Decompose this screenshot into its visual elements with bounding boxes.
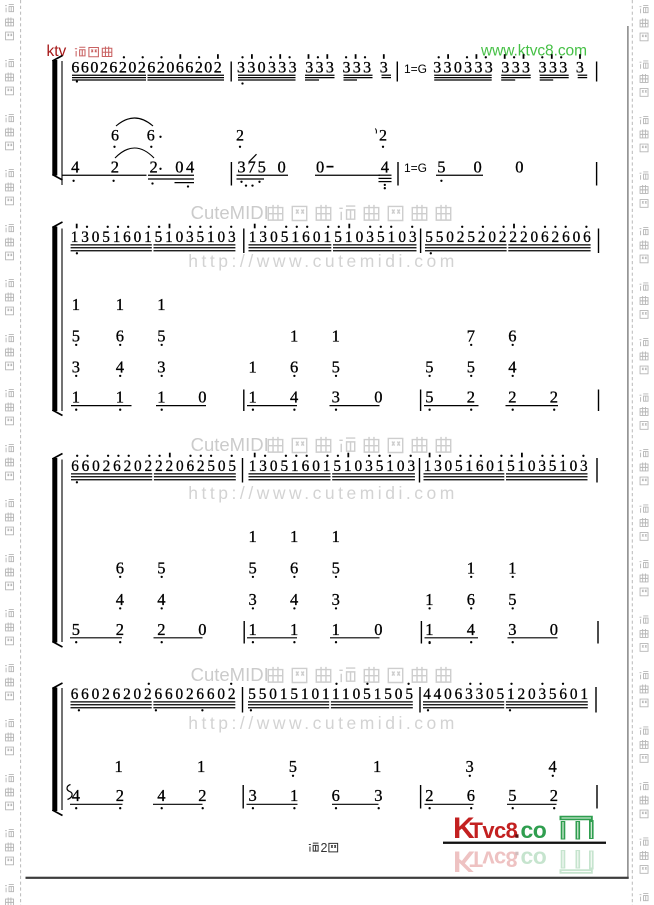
svg-text:1: 1 [425,590,433,609]
svg-text:3: 3 [249,786,257,805]
svg-text:5: 5 [425,388,433,407]
svg-text:5: 5 [289,757,297,776]
svg-text:375: 375 [237,157,266,176]
svg-text:0: 0 [198,620,206,639]
svg-text:1: 1 [290,786,298,805]
svg-text:4: 4 [549,757,557,776]
svg-text:4: 4 [116,358,124,377]
svg-text:2: 2 [508,388,516,407]
svg-text:7: 7 [467,327,475,346]
svg-text:4: 4 [290,590,298,609]
svg-text:1: 1 [115,757,123,776]
svg-text:co: co [521,817,547,843]
svg-text:3: 3 [332,388,340,407]
svg-text:1: 1 [425,620,433,639]
svg-text:5: 5 [508,590,516,609]
svg-text:0: 0 [374,620,382,639]
svg-text:2: 2 [467,388,475,407]
svg-text:1: 1 [508,559,516,578]
svg-text:1: 1 [290,620,298,639]
svg-text:5: 5 [157,559,165,578]
svg-text:330333 333 333 3: 330333 333 333 3 [433,60,584,77]
svg-text:1: 1 [467,559,475,578]
svg-text:2: 2 [157,620,165,639]
svg-text:ktv: ktv [47,43,67,60]
svg-text:CuteMIDI: CuteMIDI [191,664,269,685]
svg-text:0: 0 [198,388,206,407]
svg-text:2: 2 [425,786,433,805]
svg-text:6602620262066202: 6602620262066202 [71,60,221,77]
svg-text:6: 6 [467,590,475,609]
svg-text:4: 4 [157,786,165,805]
svg-text:0: 0 [515,157,523,176]
svg-text:CuteMIDI: CuteMIDI [191,202,269,223]
svg-text:1: 1 [249,527,257,546]
svg-text:3: 3 [374,786,382,805]
svg-text:3: 3 [72,358,80,377]
svg-text:1: 1 [332,527,340,546]
svg-text:1: 1 [249,620,257,639]
svg-text:2: 2 [236,127,244,144]
svg-text:2: 2 [116,620,124,639]
svg-text:1: 1 [249,388,257,407]
svg-text:3: 3 [332,590,340,609]
svg-text:4: 4 [72,786,80,805]
svg-text:0: 0 [474,157,482,176]
svg-text:4: 4 [290,388,298,407]
svg-text:2: 2 [321,841,328,855]
svg-text:1: 1 [373,757,381,776]
svg-text:1=G: 1=G [404,62,427,76]
svg-text:1: 1 [332,620,340,639]
svg-text:4: 4 [381,157,389,176]
svg-text:5: 5 [72,327,80,346]
svg-text:6: 6 [467,786,475,805]
svg-text:6: 6 [147,127,155,144]
svg-text:5: 5 [157,327,165,346]
svg-text:6: 6 [111,127,119,144]
svg-text:1: 1 [249,358,257,377]
svg-text:4: 4 [157,590,165,609]
svg-text:6: 6 [508,327,516,346]
svg-text:0: 0 [316,157,324,176]
svg-text:1: 1 [72,388,80,407]
svg-text:2: 2 [150,157,158,176]
svg-text:1: 1 [290,527,298,546]
svg-text:1: 1 [157,388,165,407]
svg-text:1: 1 [197,757,205,776]
svg-text:5: 5 [332,559,340,578]
svg-text:1: 1 [332,327,340,346]
svg-text:3: 3 [466,757,474,776]
svg-text:4: 4 [116,590,124,609]
svg-text:3: 3 [508,620,516,639]
svg-text:3: 3 [249,590,257,609]
svg-text:5: 5 [467,358,475,377]
svg-text:0: 0 [550,620,558,639]
svg-text:6: 6 [116,327,124,346]
svg-text:6: 6 [290,358,298,377]
svg-text:5: 5 [332,358,340,377]
svg-text:4: 4 [467,620,475,639]
svg-text:5: 5 [437,157,445,176]
svg-text:1: 1 [116,388,124,407]
svg-text:4: 4 [508,358,516,377]
svg-text:5: 5 [508,786,516,805]
svg-text:Tvc8: Tvc8 [470,818,518,843]
svg-text:1: 1 [157,295,165,314]
svg-text:2: 2 [379,127,387,144]
svg-text:3: 3 [157,358,165,377]
svg-text:1=G: 1=G [404,161,427,175]
svg-text:0: 0 [278,157,286,176]
svg-text:2: 2 [550,388,558,407]
svg-text:1: 1 [116,295,124,314]
svg-text:1: 1 [290,327,298,346]
svg-text:2: 2 [111,157,119,176]
svg-text:6: 6 [116,559,124,578]
svg-text:www.ktvc8.com: www.ktvc8.com [480,43,587,60]
svg-text:2: 2 [198,786,206,805]
svg-text:1: 1 [72,295,80,314]
svg-text:4: 4 [71,157,79,176]
svg-text:330333 333 333 3: 330333 333 333 3 [237,60,388,77]
svg-text:2: 2 [550,786,558,805]
svg-text:5: 5 [249,559,257,578]
svg-text:CuteMIDI: CuteMIDI [191,434,269,455]
svg-text:5: 5 [72,620,80,639]
svg-text:0: 0 [374,388,382,407]
svg-text:6: 6 [290,559,298,578]
svg-text:5: 5 [425,358,433,377]
svg-text:2: 2 [116,786,124,805]
svg-text:6: 6 [332,786,340,805]
